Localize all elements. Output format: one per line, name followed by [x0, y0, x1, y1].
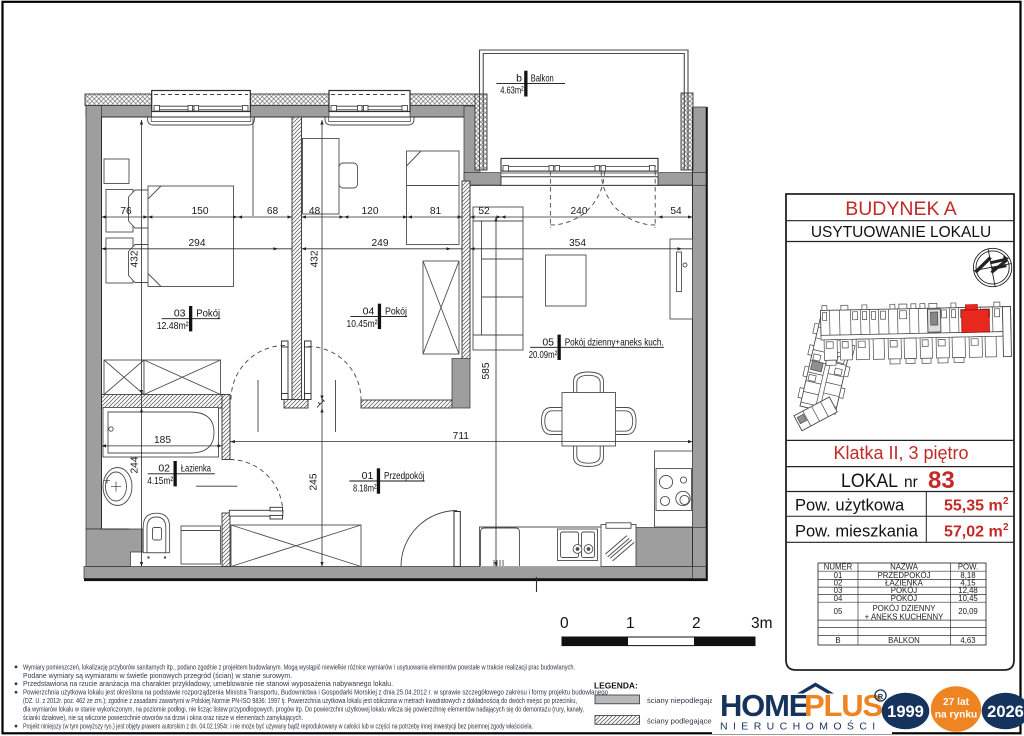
svg-text:PLUS: PLUS [804, 688, 882, 723]
svg-text:8.18m²: 8.18m² [353, 483, 377, 495]
svg-text:585: 585 [481, 362, 492, 379]
svg-text:04: 04 [363, 305, 375, 317]
svg-text:HOME: HOME [720, 688, 809, 723]
svg-text:01: 01 [362, 470, 374, 482]
svg-text:185: 185 [154, 435, 171, 446]
svg-text:05: 05 [834, 607, 843, 616]
svg-text:Pow. mieszkania: Pow. mieszkania [795, 523, 919, 541]
svg-text:3m: 3m [751, 615, 773, 632]
svg-text:249: 249 [372, 238, 389, 249]
svg-text:05: 05 [542, 336, 554, 348]
svg-text:1: 1 [626, 615, 635, 632]
svg-text:432: 432 [130, 250, 141, 267]
svg-text:57,02 m: 57,02 m [944, 524, 1003, 541]
svg-text:81: 81 [430, 206, 442, 217]
svg-text:2: 2 [1003, 496, 1009, 507]
svg-text:R: R [878, 692, 884, 701]
svg-text:244: 244 [130, 456, 141, 473]
svg-text:Pokój: Pokój [196, 308, 220, 320]
svg-text:LOKAL: LOKAL [841, 470, 898, 492]
svg-text:Balkon: Balkon [531, 72, 554, 84]
svg-text:Pokój: Pokój [385, 305, 407, 317]
svg-text:20.09m²: 20.09m² [529, 349, 558, 361]
svg-text:BALKON: BALKON [888, 636, 920, 645]
svg-text:BUDYNEK A: BUDYNEK A [845, 198, 957, 220]
svg-text:76: 76 [120, 206, 132, 217]
svg-text:12.48m²: 12.48m² [157, 320, 189, 332]
svg-text:68: 68 [267, 206, 279, 217]
svg-text:354: 354 [569, 238, 586, 249]
svg-text:10,45: 10,45 [958, 594, 978, 603]
svg-text:48: 48 [309, 206, 321, 217]
svg-text:b: b [516, 72, 522, 84]
svg-text:120: 120 [362, 206, 379, 217]
svg-text:1999: 1999 [887, 703, 924, 721]
svg-text:POKÓJ: POKÓJ [891, 594, 918, 603]
svg-text:Łazienka: Łazienka [181, 463, 211, 475]
svg-text:USYTUOWANIE LOKALU: USYTUOWANIE LOKALU [811, 224, 991, 241]
svg-text:nr: nr [904, 474, 918, 491]
svg-text:432: 432 [310, 250, 321, 267]
svg-text:04: 04 [834, 594, 843, 603]
svg-text:27 lat: 27 lat [943, 697, 970, 708]
svg-text:LEGENDA:: LEGENDA: [594, 681, 638, 691]
svg-text:54: 54 [670, 206, 682, 217]
svg-text:20,09: 20,09 [958, 607, 978, 616]
svg-text:83: 83 [928, 467, 955, 494]
svg-text:4.63m²: 4.63m² [500, 85, 524, 97]
svg-text:Pokój dzienny+aneks kuch.: Pokój dzienny+aneks kuch. [565, 336, 664, 348]
svg-text:03: 03 [174, 308, 186, 320]
svg-text:Klatka II, 3 piętro: Klatka II, 3 piętro [833, 443, 968, 463]
svg-text:711: 711 [453, 431, 470, 442]
svg-text:55,35 m: 55,35 m [944, 498, 1003, 515]
svg-text:Projekt niniejszy (w tym powyż: Projekt niniejszy (w tym powyższy rys.) … [23, 721, 533, 730]
svg-text:na rynku: na rynku [935, 710, 977, 721]
svg-text:4.15m²: 4.15m² [147, 475, 173, 487]
svg-text:2: 2 [692, 615, 701, 632]
svg-text:NIERUCHOMOŚCI: NIERUCHOMOŚCI [720, 720, 881, 733]
svg-text:52: 52 [478, 206, 490, 217]
svg-text:Przedpokój: Przedpokój [384, 470, 425, 482]
svg-text:240: 240 [571, 206, 588, 217]
svg-text:2026: 2026 [987, 703, 1024, 721]
svg-text:2: 2 [1003, 522, 1009, 533]
svg-text:+ ANEKS KUCHENNY: + ANEKS KUCHENNY [865, 612, 944, 621]
svg-text:B: B [835, 636, 840, 645]
svg-text:4,63: 4,63 [960, 636, 975, 645]
svg-text:294: 294 [189, 238, 206, 249]
svg-text:150: 150 [192, 206, 209, 217]
svg-text:0: 0 [560, 615, 569, 632]
svg-text:10.45m²: 10.45m² [347, 318, 378, 330]
svg-text:02: 02 [158, 463, 170, 475]
svg-text:245: 245 [309, 473, 320, 490]
svg-text:Pow. użytkowa: Pow. użytkowa [795, 497, 905, 515]
